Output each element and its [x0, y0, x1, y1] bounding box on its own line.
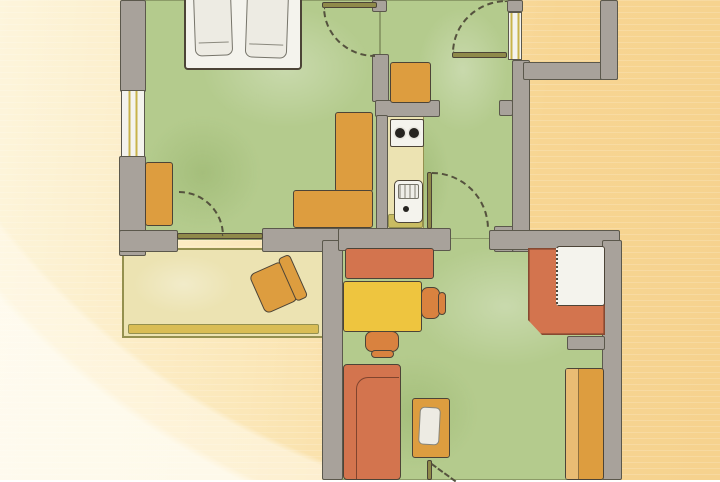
hall-window: [508, 12, 522, 60]
desk-chair-back: [438, 292, 446, 315]
wall-bedroom-bottom: [119, 230, 178, 252]
wall-left-top: [120, 0, 146, 92]
living-wardrobe: [565, 368, 604, 480]
wall-stub-top-right: [507, 0, 523, 12]
door-jamb-hall: [499, 100, 513, 116]
wall-living-left: [322, 240, 343, 480]
stove: [390, 119, 424, 147]
magazine: [418, 406, 441, 445]
front-chair-seat: [365, 331, 399, 352]
front-chair-back: [371, 350, 394, 358]
wall-hall-right: [512, 60, 530, 252]
wall-exterior-vertical: [600, 0, 618, 80]
bedroom-wardrobe: [145, 162, 173, 226]
wall-living-right: [602, 240, 622, 480]
mattress-left: [193, 0, 233, 57]
kitchen-cabinet: [390, 62, 431, 103]
bedroom-desk-long: [335, 112, 373, 192]
bedroom-window: [121, 90, 145, 158]
wall-divider-top: [372, 54, 389, 102]
sofa: [343, 364, 401, 480]
dining-table: [556, 246, 605, 306]
desk: [343, 281, 422, 332]
floor-plan: [0, 0, 720, 480]
wall-stub-nook: [567, 336, 605, 350]
sink: [394, 180, 423, 223]
screenshot-root: { "artwork": { "kind": "watercolor floor…: [0, 0, 720, 480]
sideboard: [345, 248, 434, 279]
bedroom-desk-short: [293, 190, 373, 228]
mattress-right: [245, 0, 289, 59]
wall-kitchen-divider: [376, 115, 388, 238]
